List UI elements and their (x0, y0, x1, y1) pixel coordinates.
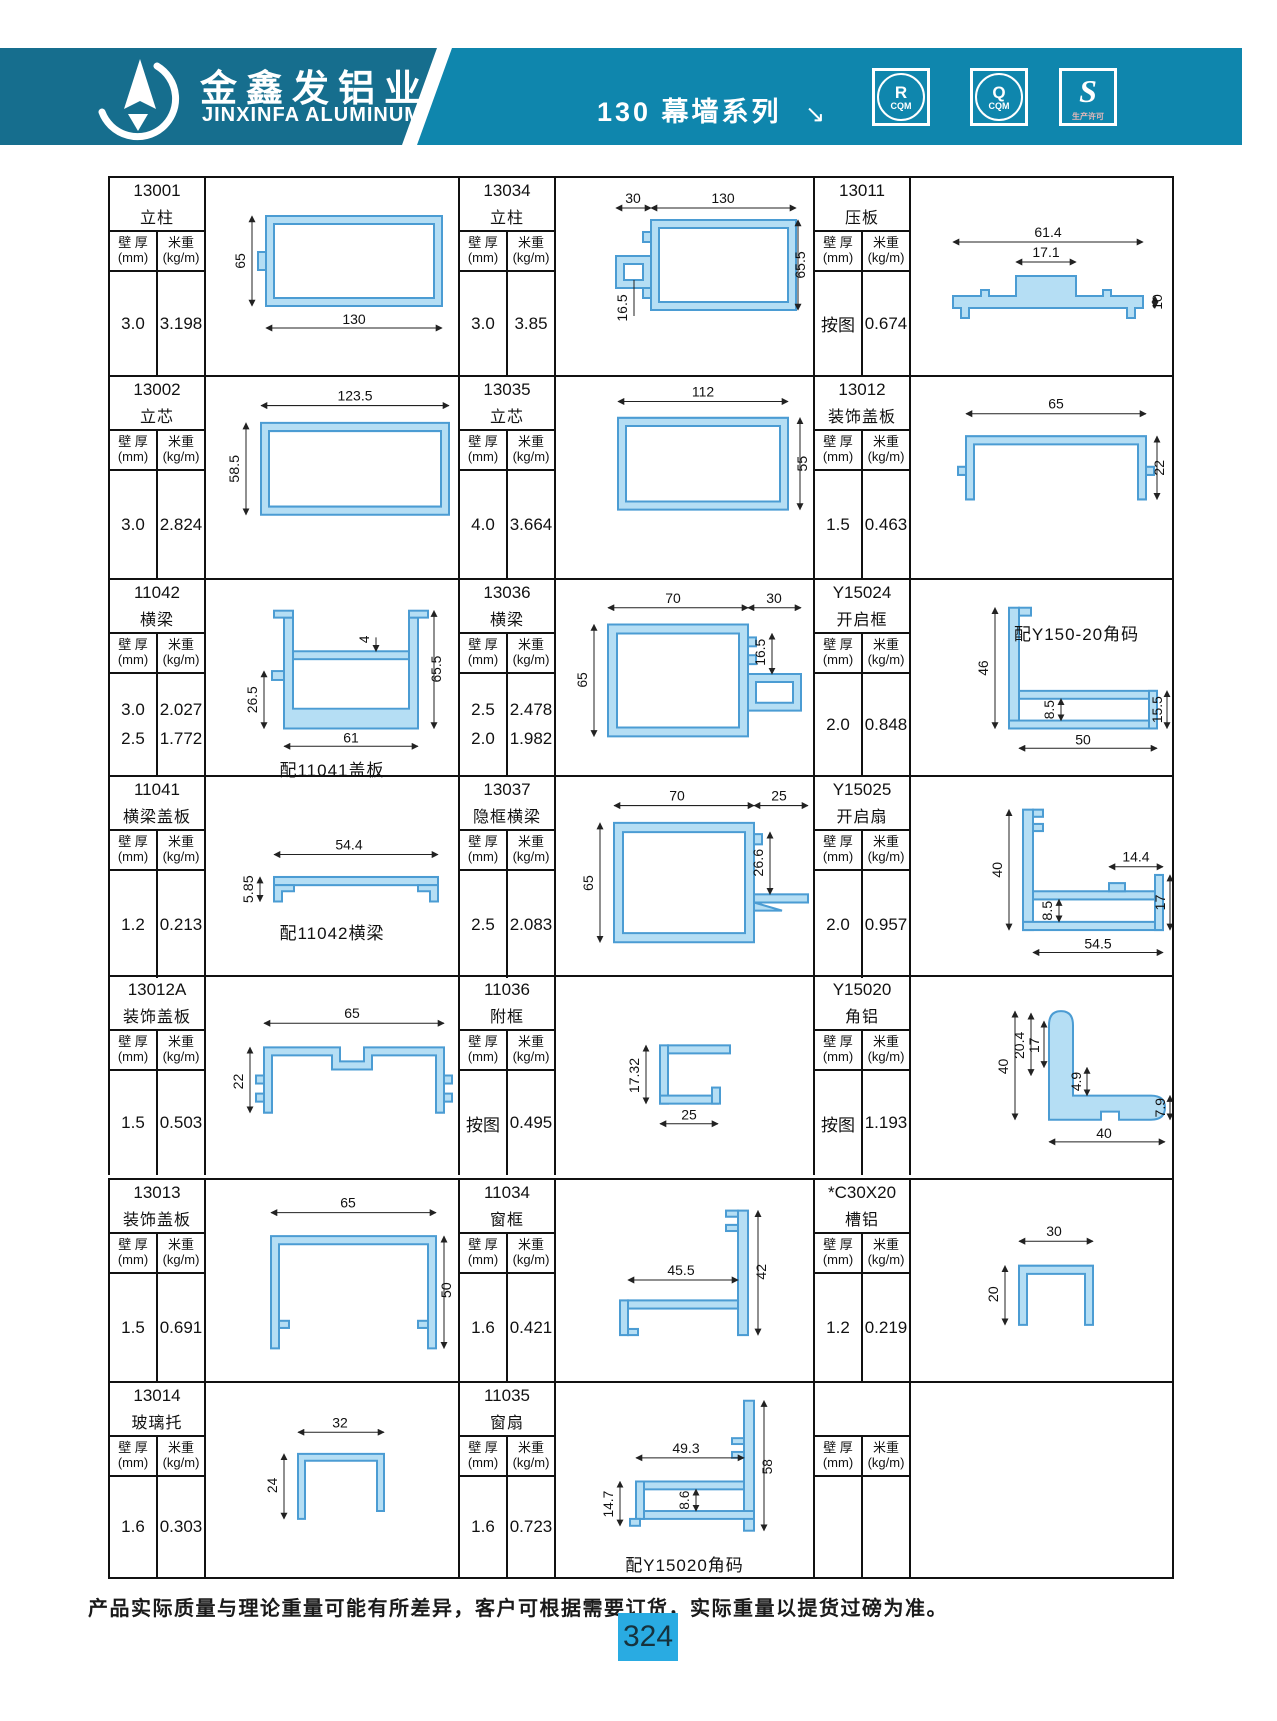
profile-drawing: 4 65.5 26.5 61 配11041盖板 (206, 580, 458, 775)
product-cell-13002: 13002立芯 壁 厚(mm)3.0 米重(kg/m)2.824 123.5 5… (108, 375, 458, 578)
thickness-value: 4.0 (460, 471, 506, 578)
weight-value: 0.213 (158, 871, 204, 978)
cert-badge-r: R CQM (872, 68, 930, 126)
profile-drawing: 49.3 58 8.6 14.7 配Y15020角码 (556, 1383, 813, 1577)
product-info: 13012装饰盖板 壁 厚(mm)1.5 米重(kg/m)0.463 (815, 377, 911, 578)
profile-shape (1019, 1266, 1093, 1325)
thickness-value: 3.0 (110, 272, 156, 375)
dimension-label: 17 (1152, 894, 1168, 910)
thickness-value: 1.5 (815, 471, 861, 578)
profile-drawing: 5.85 54.4 配11042横梁 (206, 777, 458, 978)
thickness-header: 壁 厚(mm) (815, 232, 861, 272)
profile-shape (754, 902, 782, 910)
product-code: 13035 (483, 380, 530, 400)
profile-shape (1033, 810, 1043, 817)
weight-header: 米重(kg/m) (158, 431, 204, 471)
weight-value (863, 1477, 909, 1577)
catalog-page: 金鑫发铝业 JINXINFA ALUMINUM 130 幕墙系列 ↘ R CQM… (0, 0, 1277, 1721)
dimension-label: 112 (692, 383, 714, 399)
thickness-value: 2.0 (815, 871, 861, 978)
profile-shape (298, 1454, 384, 1519)
product-code: Y15024 (833, 583, 892, 603)
product-info: 11034窗框 壁 厚(mm)1.6 米重(kg/m)0.421 (460, 1180, 556, 1381)
profile-shape (1019, 608, 1031, 616)
product-cell-13001: 13001立柱 壁 厚(mm)3.0 米重(kg/m)3.198 65 130 (108, 176, 458, 375)
product-name: 压板 (845, 204, 879, 228)
profile-drawing: 30 130 16.5 65.5 (556, 178, 813, 375)
thickness-value: 1.6 (460, 1274, 506, 1381)
cert-badge-q: Q CQM (970, 68, 1028, 126)
profile-shape (643, 232, 651, 242)
page-title: 130 幕墙系列 (597, 90, 782, 129)
weight-header: 米重(kg/m) (158, 831, 204, 871)
weight-value: 3.85 (508, 272, 554, 375)
thickness-value: 2.52.0 (460, 674, 506, 775)
profile-shape (726, 1211, 738, 1217)
dimension-label: 42 (753, 1264, 769, 1280)
product-code: 13001 (133, 181, 180, 201)
profile-shape (272, 671, 284, 680)
dimension-label: 45.5 (667, 1262, 694, 1278)
profile-drawing: 40 20.4 17 4.9 7.9 40 (911, 977, 1172, 1175)
weight-header: 米重(kg/m) (863, 1234, 909, 1274)
product-name: 开启扇 (836, 803, 887, 827)
product-info: 11035窗扇 壁 厚(mm)1.6 米重(kg/m)0.723 (460, 1383, 556, 1577)
product-cell-13013: 13013装饰盖板 壁 厚(mm)1.5 米重(kg/m)0.691 65 50 (108, 1178, 458, 1381)
profile-shape (274, 885, 294, 901)
product-cell-y15020: Y15020角铝 壁 厚(mm)按图 米重(kg/m)1.193 40 20.4… (813, 975, 1172, 1175)
weight-value: 0.303 (158, 1477, 204, 1577)
dimension-label: 58 (759, 1459, 775, 1475)
weight-header: 米重(kg/m) (158, 1031, 204, 1071)
profile-shape (261, 423, 449, 515)
profile-drawing: 70 30 16.5 65 (556, 580, 813, 775)
dimension-label: 17 (1026, 1037, 1042, 1053)
profile-shape (712, 1088, 720, 1104)
weight-value: 0.421 (508, 1274, 554, 1381)
product-info: 13013装饰盖板 壁 厚(mm)1.5 米重(kg/m)0.691 (110, 1180, 206, 1381)
product-code: 13012A (128, 980, 187, 1000)
profile-drawing: 65 130 (206, 178, 458, 375)
dimension-label: 14.4 (1122, 849, 1149, 865)
dimension-label: 26.5 (244, 686, 260, 713)
profile-drawing: 17.32 25 (556, 977, 813, 1175)
dimension-label: 15.5 (1149, 696, 1165, 723)
profile-shape (264, 1047, 444, 1112)
footer-note: 产品实际质量与理论重量可能有所差异，客户可根据需要订货，实际重量以提货过磅为准。 (88, 1592, 948, 1621)
weight-value: 0.691 (158, 1274, 204, 1381)
product-cell-11042: 11042横梁 壁 厚(mm)3.02.5 米重(kg/m)2.0271.772… (108, 578, 458, 775)
profile-drawing: 40 8.5 14.4 17 54.5 (911, 777, 1172, 978)
thickness-value: 按图 (460, 1071, 506, 1175)
thickness-value: 1.6 (460, 1477, 506, 1577)
profile-shape (732, 1452, 744, 1458)
dimension-label: 30 (1046, 1223, 1062, 1239)
thickness-header: 壁 厚(mm) (110, 232, 156, 272)
product-name: 槽铝 (845, 1206, 879, 1230)
weight-value: 2.083 (508, 871, 554, 978)
dimension-label: 22 (1151, 460, 1167, 476)
header-band: 金鑫发铝业 JINXINFA ALUMINUM 130 幕墙系列 ↘ R CQM… (0, 48, 1242, 145)
product-cell-11034: 11034窗框 壁 厚(mm)1.6 米重(kg/m)0.421 45.5 42 (458, 1178, 813, 1381)
dimension-label: 4.9 (1068, 1072, 1084, 1092)
product-info: Y15025开启扇 壁 厚(mm)2.0 米重(kg/m)0.957 (815, 777, 911, 978)
profile-shape (748, 674, 801, 711)
weight-value: 0.674 (863, 272, 909, 375)
weight-value: 2.4781.982 (508, 674, 554, 775)
product-cell-y15024: Y15024开启框 壁 厚(mm)2.0 米重(kg/m)0.848 46 8.… (813, 578, 1172, 775)
profile-drawing: 65 22 (206, 977, 458, 1175)
dimension-label: 65.5 (428, 655, 444, 682)
profile-shape (628, 1300, 738, 1308)
weight-header: 米重(kg/m) (863, 831, 909, 871)
profile-drawing: 112 55 (556, 377, 813, 578)
weight-header: 米重(kg/m) (508, 1031, 554, 1071)
profile-shape (279, 1321, 289, 1328)
dimension-label: 50 (1075, 731, 1091, 747)
dimension-label: 30 (766, 590, 782, 606)
product-name: 立芯 (140, 403, 174, 427)
product-info: 13035立芯 壁 厚(mm)4.0 米重(kg/m)3.664 (460, 377, 556, 578)
weight-header: 米重(kg/m) (508, 634, 554, 674)
profile-drawing: 65 50 (206, 1180, 458, 1381)
product-name: 窗扇 (490, 1409, 524, 1433)
product-info: 13037隐框横梁 壁 厚(mm)2.5 米重(kg/m)2.083 (460, 777, 556, 978)
profile-drawing: 70 25 26.6 65 (556, 777, 813, 978)
thickness-header: 壁 厚(mm) (460, 831, 506, 871)
thickness-value: 1.2 (815, 1274, 861, 1381)
product-name: 立柱 (490, 204, 524, 228)
profile-drawing: 32 24 (206, 1383, 458, 1577)
arrow-icon: ↘ (805, 100, 825, 129)
product-code: Y15020 (833, 980, 892, 1000)
profile-shape (668, 1045, 730, 1053)
profile-shape (636, 1481, 744, 1489)
profile-shape (258, 252, 266, 270)
dimension-label: 55 (794, 456, 810, 472)
product-info: Y15020角铝 壁 厚(mm)按图 米重(kg/m)1.193 (815, 977, 911, 1175)
product-code: 13002 (133, 380, 180, 400)
product-cell-13012: 13012装饰盖板 壁 厚(mm)1.5 米重(kg/m)0.463 65 22 (813, 375, 1172, 578)
thickness-header: 壁 厚(mm) (110, 831, 156, 871)
dimension-label: 8.5 (1041, 700, 1057, 719)
thickness-header: 壁 厚(mm) (460, 1234, 506, 1274)
product-code: 13036 (483, 583, 530, 603)
dimension-label: 40 (989, 862, 1005, 878)
product-info: 13036横梁 壁 厚(mm)2.52.0 米重(kg/m)2.4781.982 (460, 580, 556, 775)
product-cell-13012a: 13012A装饰盖板 壁 厚(mm)1.5 米重(kg/m)0.503 65 2… (108, 975, 458, 1175)
profile-shape (418, 1321, 428, 1328)
profile-shape (256, 1075, 264, 1083)
product-name: 立芯 (490, 403, 524, 427)
product-code: 13012 (838, 380, 885, 400)
dimension-label: 40 (995, 1058, 1011, 1074)
weight-header: 米重(kg/m) (158, 1437, 204, 1477)
company-logo-icon (88, 51, 188, 141)
product-code: 11042 (134, 583, 180, 603)
dimension-label: 20.4 (1011, 1031, 1027, 1059)
product-cell-13034: 13034立柱 壁 厚(mm)3.0 米重(kg/m)3.85 30 130 1… (458, 176, 813, 375)
profile-shape (726, 1225, 738, 1231)
product-info: 13011压板 壁 厚(mm)按图 米重(kg/m)0.674 (815, 178, 911, 375)
product-code: 13034 (483, 181, 530, 201)
dimension-label: 25 (681, 1107, 697, 1123)
product-info: 11036附框 壁 厚(mm)按图 米重(kg/m)0.495 (460, 977, 556, 1175)
thickness-header: 壁 厚(mm) (815, 831, 861, 871)
brand-name-en: JINXINFA ALUMINUM (202, 104, 422, 127)
dimension-label: 8.5 (1039, 901, 1055, 921)
drawing-caption: 配Y150-20角码 (981, 620, 1172, 645)
thickness-value (815, 1477, 861, 1577)
product-info: *C30X20槽铝 壁 厚(mm)1.2 米重(kg/m)0.219 (815, 1180, 911, 1381)
thickness-header: 壁 厚(mm) (110, 431, 156, 471)
profile-shape (1033, 824, 1043, 831)
dimension-label: 22 (230, 1074, 246, 1090)
weight-value: 0.848 (863, 674, 909, 775)
weight-header: 米重(kg/m) (508, 431, 554, 471)
product-cell-y15025: Y15025开启扇 壁 厚(mm)2.0 米重(kg/m)0.957 40 8.… (813, 775, 1172, 978)
thickness-value: 1.5 (110, 1071, 156, 1175)
profile-shape (660, 1096, 718, 1104)
profile-shape (1019, 691, 1157, 699)
product-code: 13013 (133, 1183, 180, 1203)
thickness-header: 壁 厚(mm) (110, 634, 156, 674)
weight-header: 米重(kg/m) (508, 1437, 554, 1477)
product-name: 隐框横梁 (473, 803, 541, 827)
dimension-label: 17.1 (1032, 244, 1059, 260)
dimension-label: 65.5 (792, 251, 808, 278)
dimension-label: 14.7 (600, 1490, 616, 1517)
dimension-label: 70 (665, 590, 681, 606)
profile-shape (636, 1481, 644, 1518)
dimension-label: 65 (344, 1005, 360, 1021)
product-name: 装饰盖板 (828, 403, 896, 427)
dimension-label: 58.5 (226, 455, 242, 483)
profile-shape (608, 625, 748, 737)
product-name: 玻璃托 (131, 1409, 182, 1433)
product-cell-13037: 13037隐框横梁 壁 厚(mm)2.5 米重(kg/m)2.083 70 25… (458, 775, 813, 978)
profile-shape (444, 1075, 452, 1083)
product-name: 横梁盖板 (123, 803, 191, 827)
profile-shape (266, 216, 442, 306)
product-info: 11042横梁 壁 厚(mm)3.02.5 米重(kg/m)2.0271.772 (110, 580, 206, 775)
profile-shape (1033, 891, 1163, 899)
thickness-header: 壁 厚(mm) (460, 634, 506, 674)
thickness-header: 壁 厚(mm) (815, 1031, 861, 1071)
product-code: Y15025 (833, 780, 892, 800)
weight-header: 米重(kg/m) (158, 232, 204, 272)
profile-shape (274, 877, 438, 885)
thickness-header: 壁 厚(mm) (815, 1437, 861, 1477)
weight-header: 米重(kg/m) (863, 232, 909, 272)
product-info: 13001立柱 壁 厚(mm)3.0 米重(kg/m)3.198 (110, 178, 206, 375)
dimension-label: 5.85 (240, 875, 256, 903)
dimension-label: 130 (711, 190, 735, 206)
profile-shape (409, 611, 428, 618)
dimension-label: 49.3 (672, 1440, 699, 1456)
weight-header: 米重(kg/m) (158, 1234, 204, 1274)
product-name: 附框 (490, 1003, 524, 1027)
cert-circle: R CQM (877, 73, 925, 121)
thickness-value: 3.0 (110, 471, 156, 578)
cert-badge-qs: S 生产许可 (1059, 68, 1117, 126)
product-cell-13036: 13036横梁 壁 厚(mm)2.52.0 米重(kg/m)2.4781.982… (458, 578, 813, 775)
product-info: 13014玻璃托 壁 厚(mm)1.6 米重(kg/m)0.303 (110, 1383, 206, 1577)
profile-drawing: 65 22 (911, 377, 1172, 578)
product-name: 角铝 (845, 1003, 879, 1027)
thickness-value: 2.0 (815, 674, 861, 775)
dimension-label: 26.6 (750, 849, 766, 877)
product-cell-11036: 11036附框 壁 厚(mm)按图 米重(kg/m)0.495 17.32 25 (458, 975, 813, 1175)
dimension-label: 65 (580, 875, 596, 891)
profile-drawing: 61.4 17.1 10 (911, 178, 1172, 375)
profile-shape (732, 1438, 744, 1444)
weight-header: 米重(kg/m) (508, 831, 554, 871)
profile-shape (620, 1300, 628, 1335)
thickness-header: 壁 厚(mm) (460, 431, 506, 471)
profile-shape (754, 834, 762, 844)
profile-shape (1023, 810, 1033, 930)
product-name: 装饰盖板 (123, 1003, 191, 1027)
dimension-label: 30 (625, 190, 641, 206)
dimension-label: 50 (438, 1282, 454, 1298)
profile-shape (651, 220, 796, 310)
product-cell-empty: 壁 厚(mm) 米重(kg/m) (813, 1381, 1172, 1577)
dimension-label: 65 (340, 1194, 356, 1210)
dimension-label: 54.4 (335, 836, 362, 852)
product-code: 11034 (484, 1183, 530, 1203)
product-code: 11041 (134, 780, 180, 800)
dimension-label: 61.4 (1034, 224, 1061, 240)
weight-header: 米重(kg/m) (158, 634, 204, 674)
weight-value: 3.664 (508, 471, 554, 578)
profile-shape (636, 1511, 754, 1519)
product-info: 11041横梁盖板 壁 厚(mm)1.2 米重(kg/m)0.213 (110, 777, 206, 978)
weight-value: 0.495 (508, 1071, 554, 1175)
profile-drawing: 123.5 58.5 (206, 377, 458, 578)
product-name: 横梁 (140, 606, 174, 630)
dimension-label: 70 (669, 787, 685, 803)
product-name: 装饰盖板 (123, 1206, 191, 1230)
product-code: *C30X20 (828, 1183, 896, 1203)
thickness-header: 壁 厚(mm) (815, 634, 861, 674)
dimension-label: 40 (1096, 1125, 1112, 1141)
product-info: Y15024开启框 壁 厚(mm)2.0 米重(kg/m)0.848 (815, 580, 911, 775)
thickness-header: 壁 厚(mm) (110, 1031, 156, 1071)
dimension-label: 17.32 (626, 1058, 642, 1093)
profile-shape (293, 651, 409, 659)
weight-value: 0.723 (508, 1477, 554, 1577)
thickness-header: 壁 厚(mm) (815, 1234, 861, 1274)
thickness-value: 3.02.5 (110, 674, 156, 775)
drawing-caption: 配Y15020角码 (556, 1551, 813, 1576)
dimension-label: 61 (343, 729, 359, 745)
profile-shape (1109, 883, 1125, 891)
dimension-label: 16.5 (614, 294, 630, 321)
page-number: 324 (618, 1613, 678, 1661)
profile-shape (1009, 721, 1157, 729)
thickness-header: 壁 厚(mm) (110, 1437, 156, 1477)
dimension-label: 130 (342, 311, 366, 327)
dimension-label: 65 (1048, 395, 1064, 411)
dimension-label: 4 (356, 635, 372, 643)
weight-value: 0.957 (863, 871, 909, 978)
profile-shape (643, 288, 651, 298)
thickness-value: 3.0 (460, 272, 506, 375)
profile-shape (630, 1519, 640, 1526)
profile-shape (444, 1094, 452, 1102)
product-code: 11036 (484, 980, 530, 1000)
thickness-value: 按图 (815, 272, 861, 375)
product-cell-13035: 13035立芯 壁 厚(mm)4.0 米重(kg/m)3.664 112 55 (458, 375, 813, 578)
profile-shape (271, 1236, 436, 1348)
thickness-value: 2.5 (460, 871, 506, 978)
product-info: 13012A装饰盖板 壁 厚(mm)1.5 米重(kg/m)0.503 (110, 977, 206, 1175)
profile-shape (1023, 922, 1163, 930)
dimension-label: 32 (332, 1414, 348, 1430)
dimension-label: 123.5 (337, 387, 372, 403)
thickness-header: 壁 厚(mm) (460, 1031, 506, 1071)
weight-value: 0.503 (158, 1071, 204, 1175)
dimension-label: 7.9 (1152, 1098, 1168, 1118)
thickness-value: 1.6 (110, 1477, 156, 1577)
dimension-label: 8.6 (676, 1490, 692, 1509)
weight-value: 3.198 (158, 272, 204, 375)
profile-shape (418, 885, 438, 901)
product-name: 横梁 (490, 606, 524, 630)
thickness-header: 壁 厚(mm) (815, 431, 861, 471)
product-cell-13014: 13014玻璃托 壁 厚(mm)1.6 米重(kg/m)0.303 32 24 (108, 1381, 458, 1577)
weight-value: 0.219 (863, 1274, 909, 1381)
profile-drawing: 45.5 42 (556, 1180, 813, 1381)
weight-value: 0.463 (863, 471, 909, 578)
dimension-label: 10 (1149, 294, 1165, 310)
drawing-caption: 配11042横梁 (206, 919, 458, 944)
product-code: 13037 (483, 780, 530, 800)
product-name: 开启框 (836, 606, 887, 630)
product-cell-13011: 13011压板 壁 厚(mm)按图 米重(kg/m)0.674 61.4 17.… (813, 176, 1172, 375)
product-name: 立柱 (140, 204, 174, 228)
product-name: 窗框 (490, 1206, 524, 1230)
product-code: 11035 (484, 1386, 530, 1406)
thickness-header: 壁 厚(mm) (460, 1437, 506, 1477)
weight-header: 米重(kg/m) (508, 1234, 554, 1274)
product-cell-11041: 11041横梁盖板 壁 厚(mm)1.2 米重(kg/m)0.213 5.85 … (108, 775, 458, 978)
profile-shape (274, 611, 293, 618)
profile-drawing (911, 1383, 1172, 1577)
dimension-label: 24 (264, 1477, 280, 1493)
dimension-label: 65 (574, 672, 590, 688)
thickness-value: 1.5 (110, 1274, 156, 1381)
product-code: 13014 (133, 1386, 180, 1406)
product-info: 13002立芯 壁 厚(mm)3.0 米重(kg/m)2.824 (110, 377, 206, 578)
profile-shape (738, 1211, 748, 1335)
profile-shape (958, 467, 966, 475)
thickness-header: 壁 厚(mm) (110, 1234, 156, 1274)
cert-circle: Q CQM (975, 73, 1023, 121)
weight-header: 米重(kg/m) (863, 431, 909, 471)
product-info: 壁 厚(mm) 米重(kg/m) (815, 1383, 911, 1577)
product-info: 13034立柱 壁 厚(mm)3.0 米重(kg/m)3.85 (460, 178, 556, 375)
dimension-label: 54.5 (1084, 935, 1111, 951)
dimension-label: 20 (985, 1286, 1001, 1302)
profile-shape (754, 894, 808, 902)
dimension-label: 16.5 (752, 639, 768, 666)
product-grid: 13001立柱 壁 厚(mm)3.0 米重(kg/m)3.198 65 130 … (108, 176, 1174, 1579)
thickness-header: 壁 厚(mm) (460, 232, 506, 272)
weight-value: 1.193 (863, 1071, 909, 1175)
weight-header: 米重(kg/m) (508, 232, 554, 272)
